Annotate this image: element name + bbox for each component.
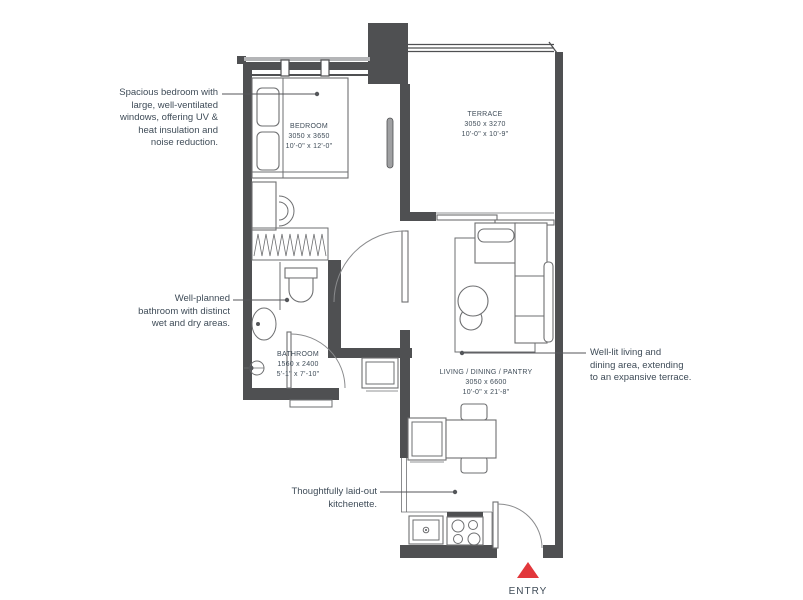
coffee-table <box>458 286 488 330</box>
terrace-dim-ft: 10'-0" x 10'-9" <box>462 131 509 138</box>
kitchen-cabinet <box>408 418 446 462</box>
entry-door-swing <box>493 502 542 548</box>
window-mullion <box>321 60 329 76</box>
window-mullion <box>281 60 289 76</box>
entry-label: ENTRY <box>509 586 548 597</box>
window-frame <box>244 62 368 70</box>
washing-machine <box>362 358 398 391</box>
bathroom-label: BATHROOM 1560 x 2400 5'-1" x 7'-10" <box>277 351 320 378</box>
washbasin <box>252 308 276 340</box>
floor-plan-page: BEDROOM 3050 x 3650 10'-0" x 12'-0" TERR… <box>0 0 803 600</box>
leader-line-living <box>460 351 586 355</box>
window-sill-line <box>252 74 368 76</box>
wall-bathroom-bottom <box>243 388 339 400</box>
pillow <box>257 132 279 170</box>
kitchen-sink <box>409 516 443 544</box>
terrace-name: TERRACE <box>467 111 502 118</box>
wardrobe <box>252 228 328 260</box>
wall-bathroom-right <box>328 260 341 352</box>
dining-chair <box>461 404 487 420</box>
wall-left <box>243 62 252 400</box>
terrace-dim-mm: 3050 x 3270 <box>464 121 505 128</box>
threshold <box>290 400 332 407</box>
bedroom-dim-ft: 10'-0" x 12'-0" <box>286 143 333 150</box>
living-dim-mm: 3050 x 6600 <box>465 379 506 386</box>
bathroom-dim-mm: 1560 x 2400 <box>277 361 318 368</box>
wall-bedroom-terrace <box>400 84 410 213</box>
terrace-label: TERRACE 3050 x 3270 10'-0" x 10'-9" <box>462 111 509 138</box>
entry-arrow-icon <box>517 562 539 578</box>
bedroom-label: BEDROOM 3050 x 3650 10'-0" x 12'-0" <box>286 123 333 150</box>
stove <box>447 512 483 545</box>
corridor-door-swing <box>334 231 408 302</box>
dining-table <box>446 420 496 458</box>
window-glass-line <box>244 57 370 61</box>
tv <box>387 118 393 168</box>
desk-chair <box>279 196 294 226</box>
sofa <box>475 223 553 343</box>
bathroom-dim-ft: 5'-1" x 7'-10" <box>277 371 320 378</box>
wall-living-stub <box>400 212 436 221</box>
toilet <box>285 268 317 302</box>
living-dim-ft: 10'-0" x 21'-8" <box>463 389 510 396</box>
bedroom-window <box>244 57 370 76</box>
entry-marker: ENTRY <box>509 562 548 597</box>
bedroom-name: BEDROOM <box>290 123 328 130</box>
terrace-railing <box>408 42 557 53</box>
annotation-bedroom: Spacious bedroom with large, well-ventil… <box>84 87 218 150</box>
leader-line-kitchenette <box>380 490 457 494</box>
wall-corridor-bottom <box>328 348 412 358</box>
bathroom-name: BATHROOM <box>277 351 319 358</box>
desk <box>252 182 276 230</box>
dining-chair <box>461 457 487 473</box>
living-label: LIVING / DINING / PANTRY 3050 x 6600 10'… <box>440 369 533 396</box>
wall-bottom-right <box>543 545 563 558</box>
bedroom-dim-mm: 3050 x 3650 <box>288 133 329 140</box>
annotation-bathroom: Well-planned bathroom with distinct wet … <box>124 293 230 331</box>
annotation-living: Well-lit living and dining area, extendi… <box>590 347 720 385</box>
wall-bottom-left <box>400 545 497 558</box>
leader-line-bathroom <box>233 298 289 302</box>
wall-pillar <box>368 23 408 84</box>
annotation-kitchenette: Thoughtfully laid-out kitchenette. <box>268 486 377 511</box>
wall-right <box>555 52 563 558</box>
living-name: LIVING / DINING / PANTRY <box>440 369 533 376</box>
